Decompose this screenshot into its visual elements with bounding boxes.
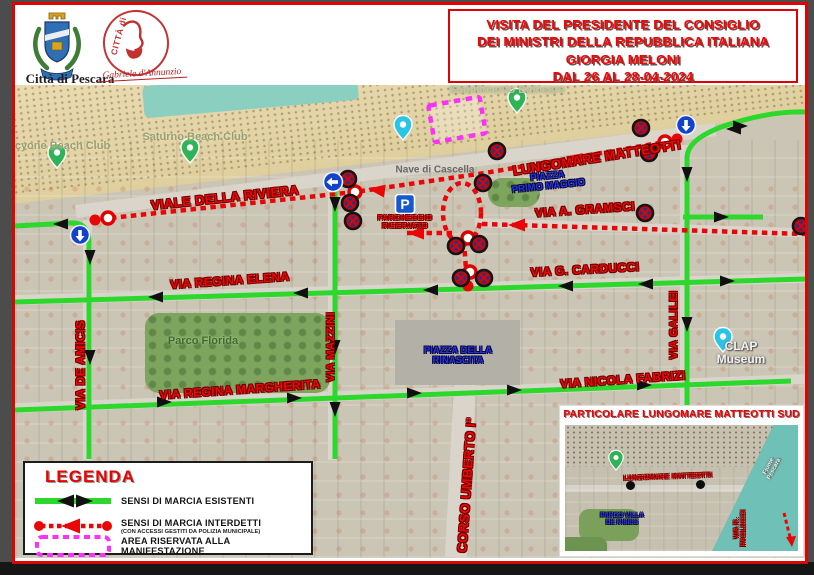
inset-labels-layer: LUNGOMARE MATTEOTTIPARCO VILLA DE RISEIS… — [565, 425, 798, 551]
label-via-regina-margherita: VIA REGINA MARGHERITA — [159, 378, 321, 402]
inset-title: PARTICOLARE LUNGOMARE MATTEOTTI SUD — [560, 409, 803, 420]
label-via-regina-elena: VIA REGINA ELENA — [170, 270, 290, 291]
label-viale-della-riviera: VIALE DELLA RIVIERA — [150, 183, 299, 212]
title-line: DEI MINISTRI DELLA REPUBBLICA ITALIANA — [450, 33, 796, 50]
label-via-mazzini: VIA MAZZINI — [326, 312, 338, 382]
title-line: DAL 26 AL 28-04-2024 — [450, 68, 796, 85]
label-fiume-pescara: Fiume Pescara — [760, 453, 784, 482]
label-via-g-carducci: VIA G. CARDUCCI — [530, 261, 639, 280]
label-parco-villa-de-riseis: PARCO VILLA DE RISEIS — [600, 512, 644, 526]
legend-item-sublabel: (CON ACCESSI GESTITI DA POLIZIA MUNICIPA… — [121, 529, 261, 535]
label-via-a-gramsci: VIA A. GRAMSCI — [535, 200, 636, 220]
page: { "header": { "city_name": "Città di Pes… — [0, 0, 814, 575]
reserved-area-swatch — [33, 535, 113, 557]
label-via-nicola-fabrizi: VIA NICOLA FABRIZI — [560, 369, 686, 391]
legend-item-label: SENSI DI MARCIA INTERDETTI — [121, 518, 261, 528]
label-alcyone-beach-club: Alcyone Beach Club — [15, 141, 110, 153]
label-stabilimento-balneare: Stabilimento Balneare — [449, 85, 565, 97]
title-line: VISITA DEL PRESIDENTE DEL CONSIGLIO — [450, 16, 796, 33]
label-parco-florida: Parco Florida — [168, 336, 238, 348]
legend: LEGENDA SENSI DI MARCIA ESISTENTI SENSI … — [23, 461, 313, 555]
existing-directions-swatch — [33, 490, 113, 512]
title-line: GIORGIA MELONI — [450, 51, 796, 68]
label-via-galilei: VIA GALILEI — [669, 291, 681, 360]
label-saturno-beach-club: Saturno Beach Club — [142, 132, 247, 144]
traffic-plan-document: Città di Pescara Medaglia d'oro al Merit… — [12, 2, 808, 564]
label-piazza-della-rinascita: PIAZZA DELLA RINASCITA — [424, 346, 492, 367]
legend-item-label: AREA RISERVATA ALLA MANIFESTAZIONE — [121, 536, 311, 556]
inset-detail-map: PARTICOLARE LUNGOMARE MATTEOTTI SUD LUNG… — [560, 406, 803, 556]
label-via-de-amicis: VIA DE AMICIS — [75, 320, 88, 410]
legend-title: LEGENDA — [45, 467, 135, 487]
label-nave-di-cascella: Nave di Cascella — [396, 166, 475, 177]
legend-item-label: SENSI DI MARCIA ESISTENTI — [121, 496, 254, 506]
label-parcheggio-riservato: PARCHEGGIO RISERVATO — [378, 214, 433, 230]
visit-title-box: VISITA DEL PRESIDENTE DEL CONSIGLIO DEI … — [448, 9, 798, 83]
inset-satellite-map: LUNGOMARE MATTEOTTIPARCO VILLA DE RISEIS… — [565, 425, 798, 551]
label-via-r-paolucci: VIA R. PAOLUCCI — [733, 499, 747, 551]
label-clap-museum: CLAP Museum — [709, 340, 773, 366]
label-corso-umberto-i-: CORSO UMBERTO I° — [455, 417, 478, 553]
prohibited-directions-swatch — [33, 515, 113, 537]
label-lungomare-matteotti: LUNGOMARE MATTEOTTI — [624, 472, 713, 482]
